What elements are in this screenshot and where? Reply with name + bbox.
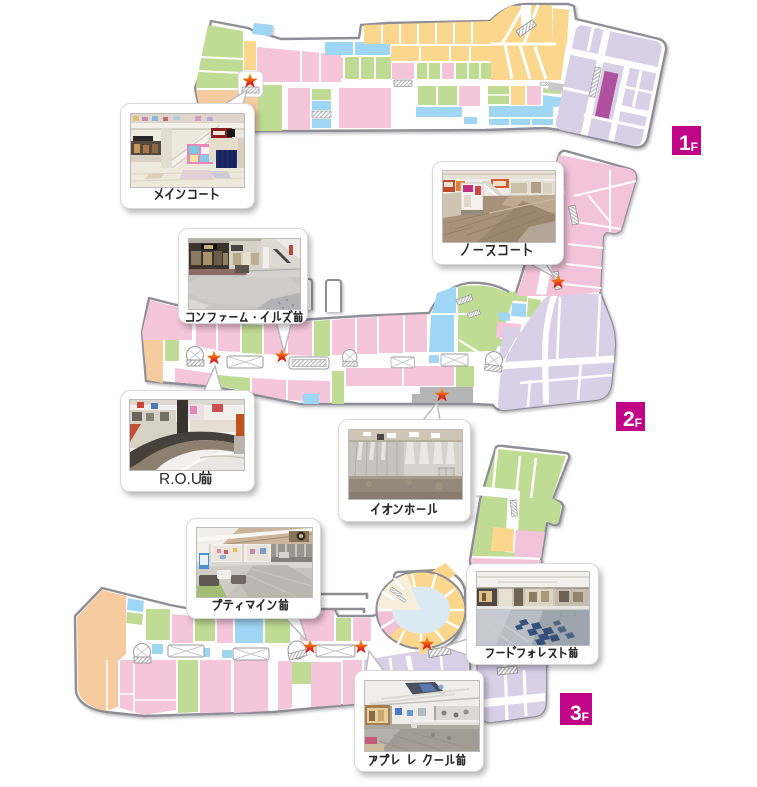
svg-text:R.O.U: R.O.U	[159, 471, 202, 488]
